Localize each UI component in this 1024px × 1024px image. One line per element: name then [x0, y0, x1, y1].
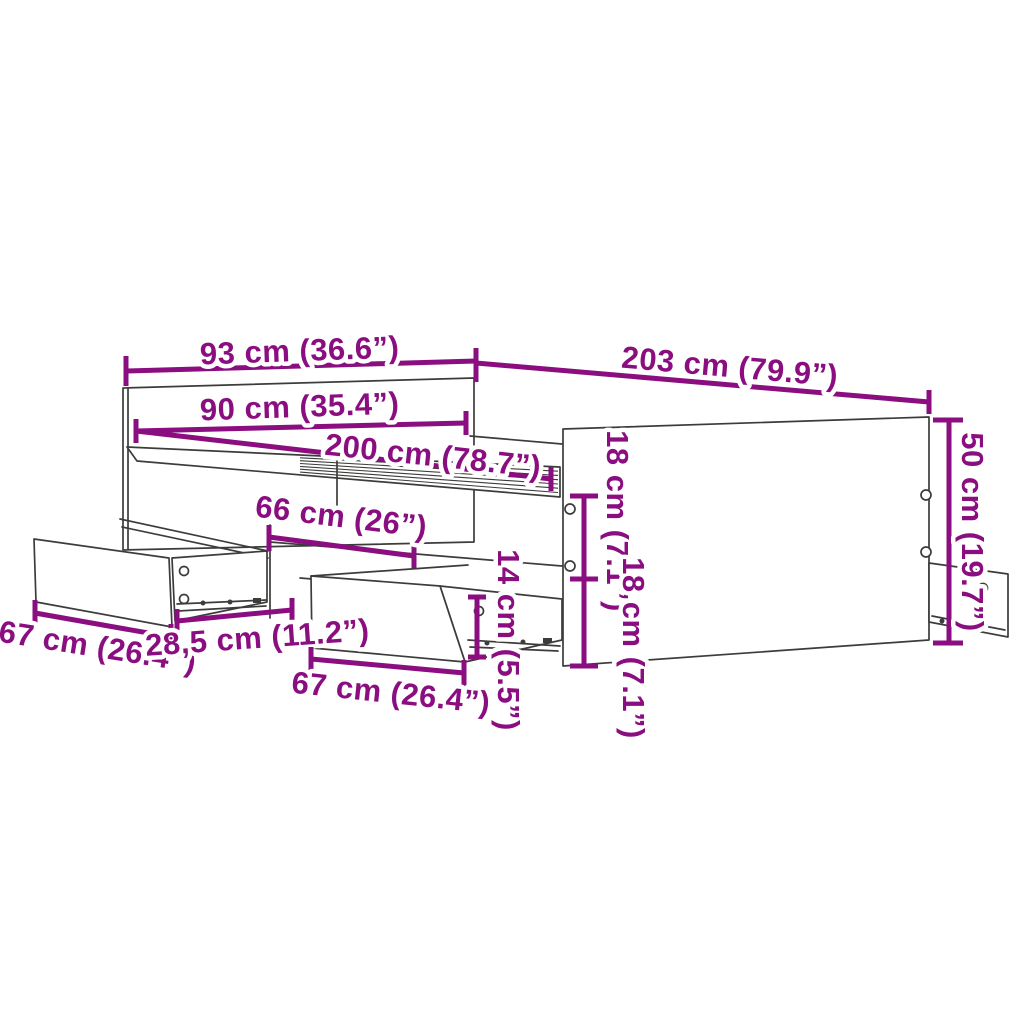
dim-label-93: 93 cm (36.6”) — [199, 330, 400, 372]
bed-diagram: 93 cm (36.6”) 203 cm (79.9”) 90 cm (35.4… — [0, 0, 1024, 1024]
drawer-center-back-edge — [311, 565, 468, 576]
drawer-left-front-panel — [34, 539, 172, 627]
rail-screw — [228, 600, 233, 605]
side-hole-right-bottom — [921, 547, 931, 557]
rail-screw — [940, 619, 945, 624]
diagram-stage: 93 cm (36.6”) 203 cm (79.9”) 90 cm (35.4… — [0, 0, 1024, 1024]
drawer-left-hole-bottom — [180, 595, 189, 604]
dim-label-50: 50 cm (19.7”) — [955, 432, 990, 632]
dim-frame-length-outer: 203 cm (79.9”) — [476, 340, 929, 414]
rail-stop — [543, 638, 552, 643]
dim-label-18-bottom: 18 cm (7.1”) — [616, 557, 651, 739]
rail-screw — [201, 601, 206, 606]
rail-screw — [485, 641, 490, 646]
side-hole-left-top — [565, 504, 575, 514]
side-hole-right-top — [921, 490, 931, 500]
dim-label-90: 90 cm (35.4”) — [199, 386, 400, 428]
dim-headboard-width: 93 cm (36.6”) — [126, 330, 476, 386]
dim-label-14: 14 cm (5.5”) — [491, 549, 526, 731]
rail-stop — [253, 598, 261, 603]
drawer-left-hole-top — [180, 567, 189, 576]
side-hole-left-bottom — [565, 561, 575, 571]
